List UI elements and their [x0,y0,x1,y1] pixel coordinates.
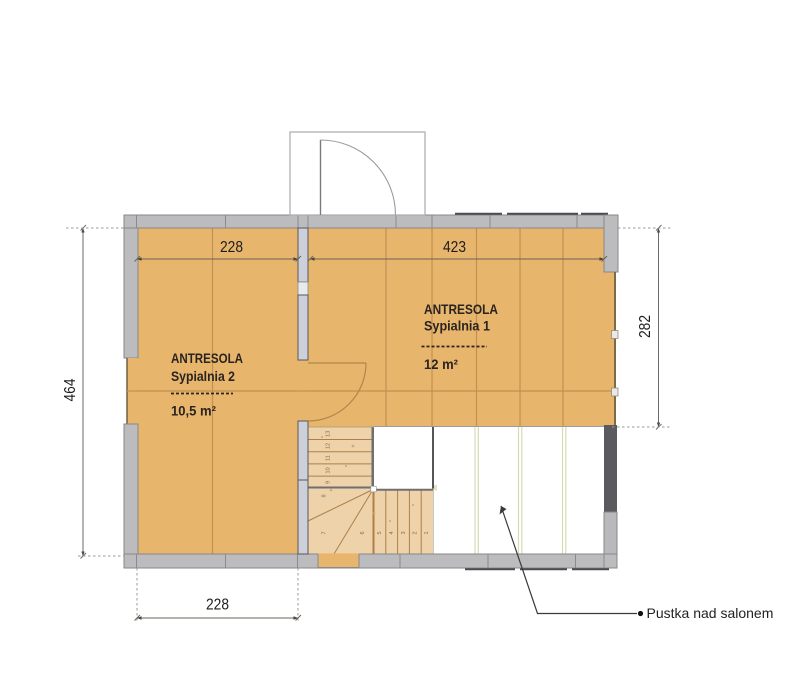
svg-text:9: 9 [326,481,332,484]
svg-text:Pustka nad salonem: Pustka nad salonem [647,605,774,621]
svg-text:Sypialnia 2: Sypialnia 2 [171,368,235,384]
svg-text:11: 11 [326,455,332,461]
svg-text:12 m²: 12 m² [424,357,458,372]
svg-text:13: 13 [326,431,332,437]
svg-text:8: 8 [322,494,328,497]
svg-text:12: 12 [326,443,332,449]
svg-text:423: 423 [443,239,466,256]
svg-text:6: 6 [360,531,366,534]
svg-text:4: 4 [389,531,395,534]
svg-text:10: 10 [326,467,332,473]
svg-text:5: 5 [377,531,383,534]
svg-text:ANTRESOLA: ANTRESOLA [424,301,498,317]
svg-text:228: 228 [220,239,243,256]
svg-text:228: 228 [206,597,229,614]
svg-text:7: 7 [322,531,328,534]
svg-text:ANTRESOLA: ANTRESOLA [171,350,243,366]
svg-text:Sypialnia 1: Sypialnia 1 [424,318,490,334]
svg-text:282: 282 [637,315,654,338]
svg-text:10,5 m²: 10,5 m² [171,404,216,419]
svg-text:464: 464 [62,378,79,401]
svg-text:2: 2 [413,531,419,534]
svg-text:1: 1 [424,531,430,534]
svg-text:3: 3 [401,531,407,534]
